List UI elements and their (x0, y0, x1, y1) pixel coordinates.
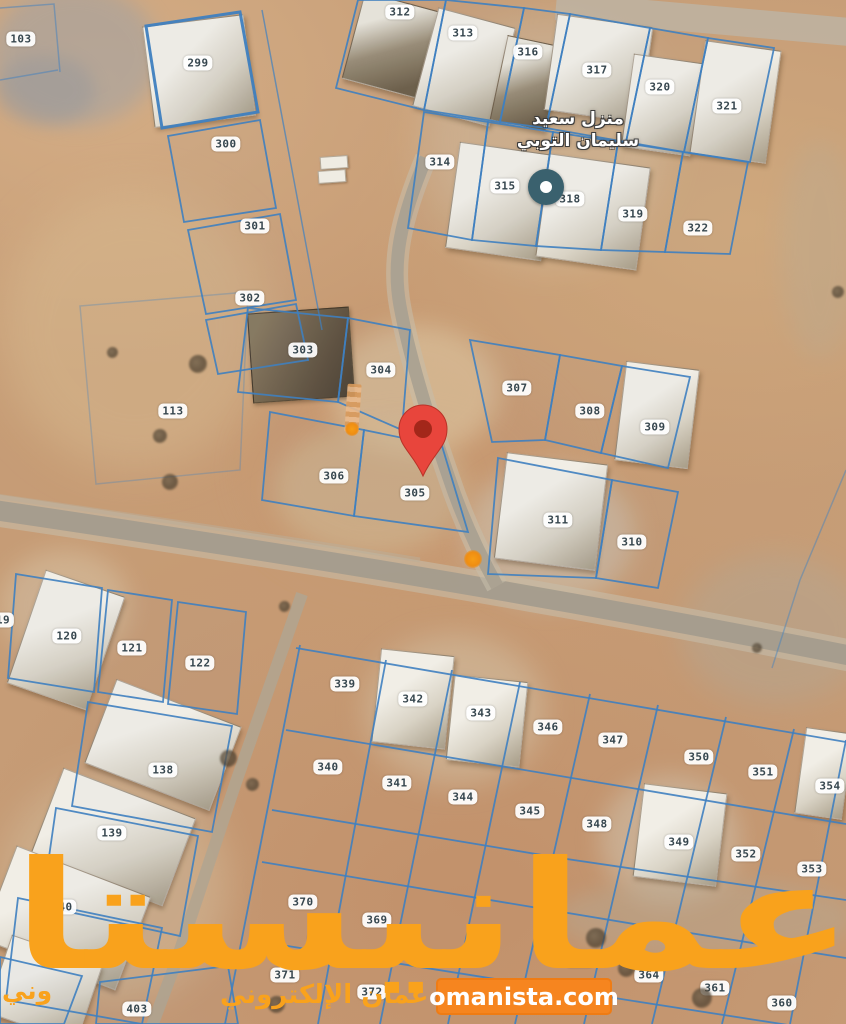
poi-place-marker[interactable] (528, 169, 564, 205)
tree (752, 643, 762, 653)
orange-dot-marker (464, 550, 482, 568)
tree (279, 601, 290, 612)
satellite-map[interactable]: 1032993003013023123133163173203213143153… (0, 0, 846, 1024)
tree (107, 347, 118, 358)
poi-label-line1: منزل سعيد (462, 108, 694, 130)
poi-place-label: منزل سعيد سليمان التوبي (462, 108, 694, 152)
watermark-site-box: omanista.com (436, 978, 612, 1015)
tree (162, 474, 178, 490)
tree (246, 778, 259, 791)
watermark-fragment: وني (2, 976, 52, 1006)
poi-label-line2: سليمان التوبي (462, 130, 694, 152)
orange-dot-marker (345, 422, 359, 436)
tree (189, 355, 207, 373)
tree (153, 429, 167, 443)
tree (832, 286, 844, 298)
tree (220, 750, 237, 767)
watermark-site-url: omanista.com (429, 985, 619, 1009)
